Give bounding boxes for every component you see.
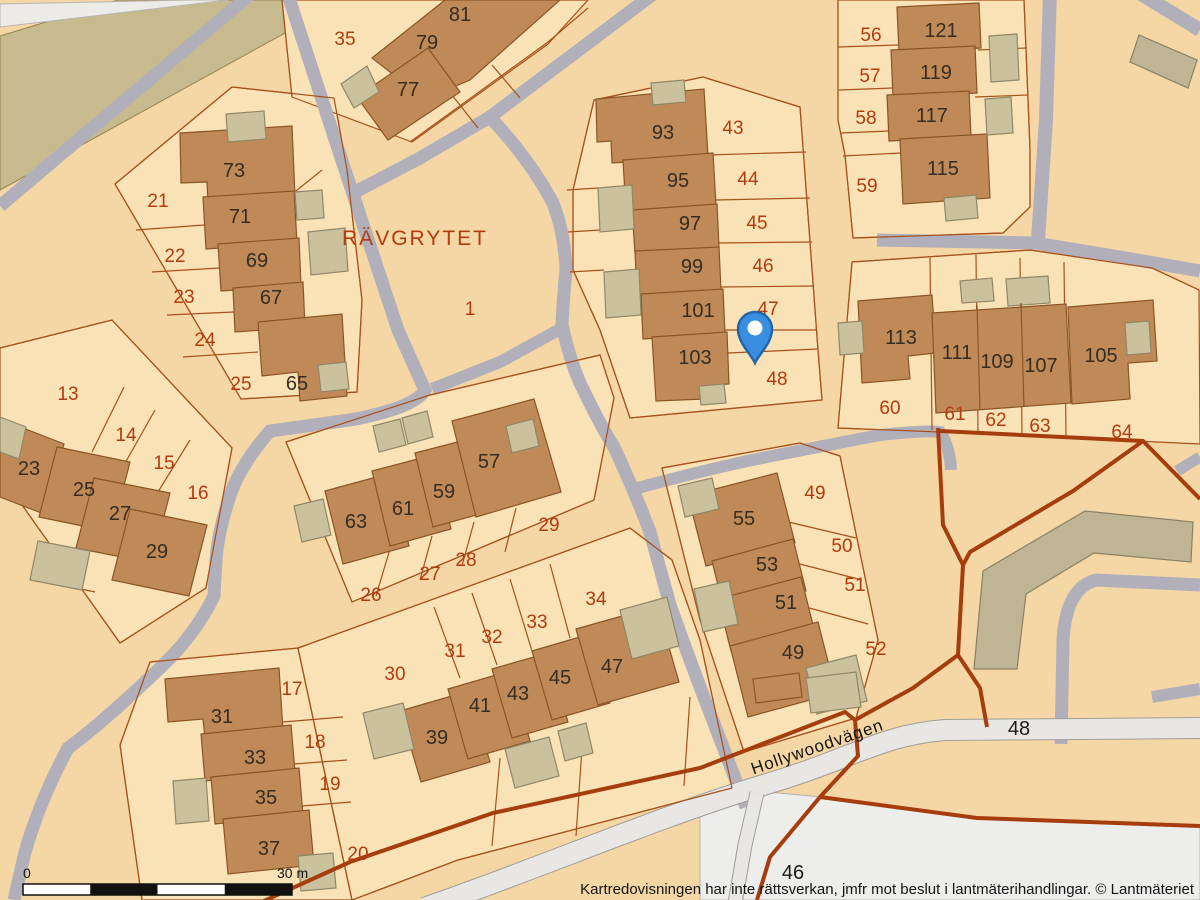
map-label: 60 [879,398,900,419]
map-label: 30 [384,664,405,685]
map-label: 13 [57,384,78,405]
map-label: 35 [334,29,355,50]
map-label: 46 [752,256,773,277]
map-label: 119 [920,62,952,84]
map-label: 105 [1084,345,1117,367]
map-label: 69 [246,250,268,272]
map-label: 21 [147,191,168,212]
map-label: 71 [229,206,251,228]
building [598,185,634,232]
map-label: 61 [944,404,965,425]
map-label: 37 [258,838,280,860]
map-label: 31 [444,641,465,662]
map-label: 73 [223,160,245,182]
map-label: 33 [244,747,266,769]
building [604,269,641,318]
building [1006,276,1050,306]
map-label: 65 [286,373,308,395]
map-label: 14 [115,425,137,446]
map-label: 121 [924,20,957,42]
scale-start-label: 0 [23,865,31,881]
map-label: 117 [916,105,948,127]
map-label: 23 [18,458,40,480]
map-label: 111 [942,342,972,364]
map-label: 52 [865,639,886,660]
building [226,111,266,142]
building [989,34,1019,82]
map-label: 19 [319,774,340,795]
building [838,321,864,355]
building [635,247,721,296]
map-label: 17 [281,679,302,700]
map-label: 44 [737,169,759,190]
building [651,80,686,105]
map-label: 27 [419,564,440,585]
scale-end-label: 30 m [277,865,308,881]
map-label: 45 [549,667,571,689]
map-label: 101 [681,300,714,322]
map-label: 32 [481,627,502,648]
map-label: 16 [187,483,208,504]
map-label: 99 [681,256,703,278]
map-label: 33 [526,612,547,633]
map-label: 48 [1008,718,1030,740]
map-label: 15 [153,453,174,474]
map-label: 24 [194,330,216,351]
building [753,673,802,703]
map-stage: 3521222324251314151614344454647485657585… [0,0,1200,900]
building [295,190,324,220]
building [318,362,349,392]
map-label: 45 [746,213,767,234]
map-label: 93 [652,122,674,144]
building [1125,321,1151,355]
map-label: 61 [392,498,414,520]
map-label: 27 [109,503,131,525]
map-label: 43 [722,118,743,139]
map-label: 62 [985,410,1006,431]
map-label: 63 [1029,416,1050,437]
map-label: 97 [679,213,701,235]
map-label: 20 [347,844,368,865]
map-label: 67 [260,287,282,309]
map-label: 56 [860,25,881,46]
map-label: 1 [465,299,476,320]
scale-bar [23,884,292,895]
place-label: RÄVGRYTET [342,227,488,250]
map-label: 103 [678,347,711,369]
map-label: 48 [766,369,787,390]
map-label: 79 [416,32,438,54]
building [944,195,978,221]
map-label: 51 [844,575,865,596]
building [985,97,1013,135]
building [173,778,209,824]
road [1152,689,1200,697]
map-label: 59 [856,176,877,197]
map-label: 95 [667,170,689,192]
map-label: 47 [601,656,623,678]
map-label: 55 [733,508,755,530]
map-disclaimer: Kartredovisningen har inte rättsverkan, … [580,881,1194,898]
building [806,672,861,713]
map-label: 57 [859,66,880,87]
building [699,384,726,405]
building [506,419,539,453]
map-label: 53 [756,554,778,576]
map-label: 77 [397,79,419,101]
map-label: 43 [507,683,529,705]
map-label: 57 [478,451,500,473]
map-label: 25 [73,479,95,501]
building [960,278,994,303]
map-label: 18 [304,732,325,753]
map-label: 109 [980,351,1013,373]
map-label: 34 [585,589,607,610]
building [632,204,719,253]
map-label: 41 [469,695,491,717]
map-label: 64 [1111,422,1133,443]
map-label: 31 [211,706,233,728]
map-label: 49 [782,642,804,664]
map-label: 107 [1024,355,1057,377]
map-canvas[interactable]: 3521222324251314151614344454647485657585… [0,0,1200,900]
map-label: 113 [885,327,917,349]
map-label: 39 [426,727,448,749]
map-label: 26 [360,585,381,606]
map-label: 50 [831,536,852,557]
map-label: 58 [855,108,876,129]
map-label: 28 [455,550,476,571]
map-label: 35 [255,787,277,809]
map-label: 51 [775,592,797,614]
map-label: 115 [927,158,959,180]
map-label: 81 [449,4,471,26]
map-label: 49 [804,483,825,504]
map-label: 63 [345,511,367,533]
map-label: 29 [146,541,168,563]
map-label: 59 [433,481,455,503]
map-label: 22 [164,246,185,267]
map-label: 29 [538,515,559,536]
map-label: 23 [173,287,194,308]
map-label: 25 [230,374,251,395]
